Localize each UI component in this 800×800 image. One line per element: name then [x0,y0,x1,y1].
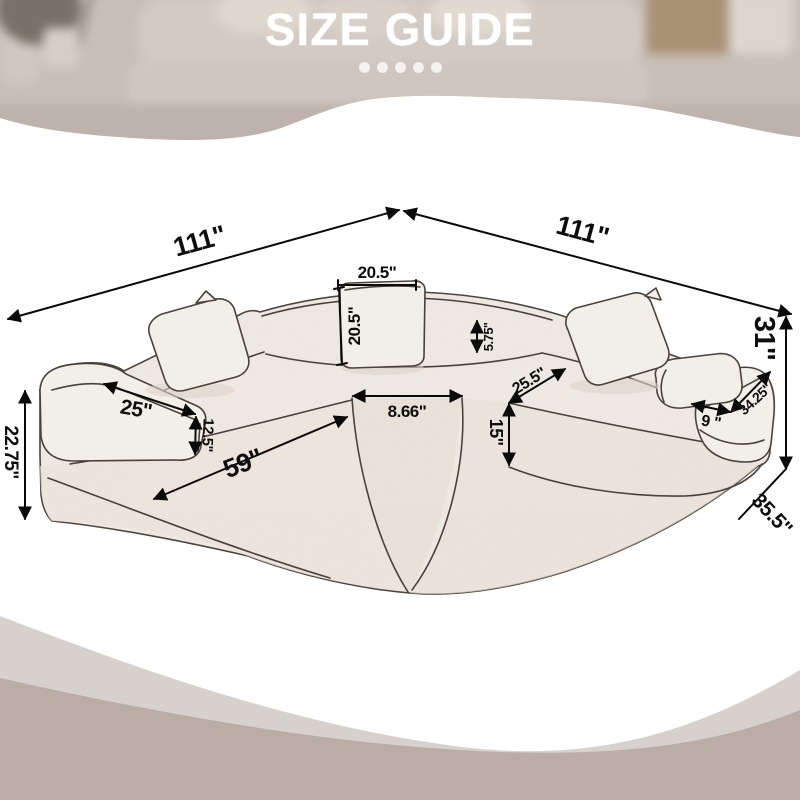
dim-label-right-width: 111" [553,210,612,253]
dim-label-back-cushion-height: 5.75'' [481,322,496,351]
size-guide-image: SIZE GUIDE [0,0,800,800]
dim-label-center-seat-width: 8.66" [388,402,427,421]
left-pillow-flap [196,291,216,303]
left-pillow [149,299,249,391]
sofa-dimension-diagram: 111" 111" 20.5" 20.5" 5.75'' 25'' 12.5''… [0,0,800,800]
dim-label-pillow-width: 20.5" [358,263,397,282]
dim-line-armrest-height [195,417,196,454]
dim-label-side-depth: 35.5'' [747,489,796,540]
dim-label-seat-height: 15'' [486,419,506,446]
dim-label-overall-height: 31'' [748,316,780,360]
dim-label-left-width: 111" [170,220,229,263]
bolster-pillow [655,354,742,408]
dim-label-left-overall-height: 22.75'' [0,425,21,478]
dim-label-pillow-height: 20.5" [345,307,364,346]
dim-label-armrest-top-width: 9 " [700,412,722,432]
dim-label-armrest-height: 12.5'' [198,418,216,452]
sofa-illustration [30,275,780,605]
